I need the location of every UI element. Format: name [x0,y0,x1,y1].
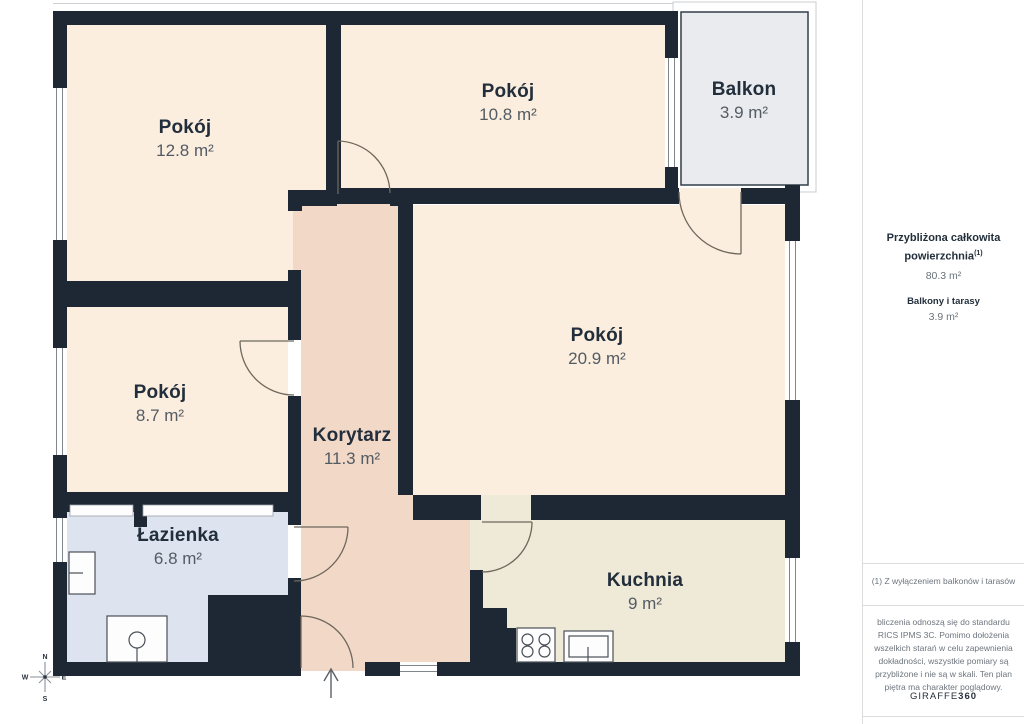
balcony-floor [681,12,808,185]
room-floor-pokoj-8-7 [67,307,288,492]
sink [564,631,613,662]
washbasin [69,552,95,594]
room-floor-pokoj-10-8 [341,25,665,192]
window-room-8-7 [53,348,67,455]
divider [863,563,1024,564]
total-area-label-line2: powierzchnia [904,251,974,263]
compass-east-label: E [62,675,67,682]
bathroom-cabinet-left [70,505,133,516]
window-kitchen [785,558,800,642]
entrance-arrow-icon [324,669,338,698]
total-area-value: 80.3 m² [863,270,1024,282]
divider [863,605,1024,606]
window-room-10-8-balcony [665,58,678,167]
disclaimer-text: bliczenia odnoszą się do standardu RICS … [870,616,1017,693]
area-footnote: (1) Z wyłączeniem balkonów i tarasów [863,576,1024,586]
window-bathroom [53,518,67,562]
window-entrance-side [400,662,437,676]
compass-south-label: S [43,696,48,703]
stove [517,628,555,662]
total-area-label-line1: Przybliżona całkowita [887,232,1001,244]
floor-plan-page: N S W E Pokój 12.8 m² Pokój 10.8 m² Balk… [0,0,1024,724]
room-floor-pokoj-12-8 [67,25,326,281]
brand-name: GIRAFFE [910,691,958,702]
balconies-label: Balkony i tarasy [863,296,1024,307]
giraffe360-logo: GIRAFFE360 [863,691,1024,702]
compass-north-label: N [42,654,47,661]
balconies-value: 3.9 m² [863,311,1024,323]
window-room-12-8 [53,88,67,240]
divider [863,716,1024,717]
shower [107,616,167,662]
window-room-20-9 [785,241,800,400]
sidebar: Przybliżona całkowita powierzchnia(1) 80… [862,0,1024,724]
footnote-marker: (1) [974,250,983,257]
area-summary: Przybliżona całkowita powierzchnia(1) 80… [863,231,1024,323]
bathroom-cabinet-right [143,505,273,516]
compass-west-label: W [22,675,29,682]
room-floor-pokoj-20-9 [413,188,785,495]
total-area-label: Przybliżona całkowita powierzchnia(1) [863,231,1024,265]
brand-suffix: 360 [958,691,977,702]
